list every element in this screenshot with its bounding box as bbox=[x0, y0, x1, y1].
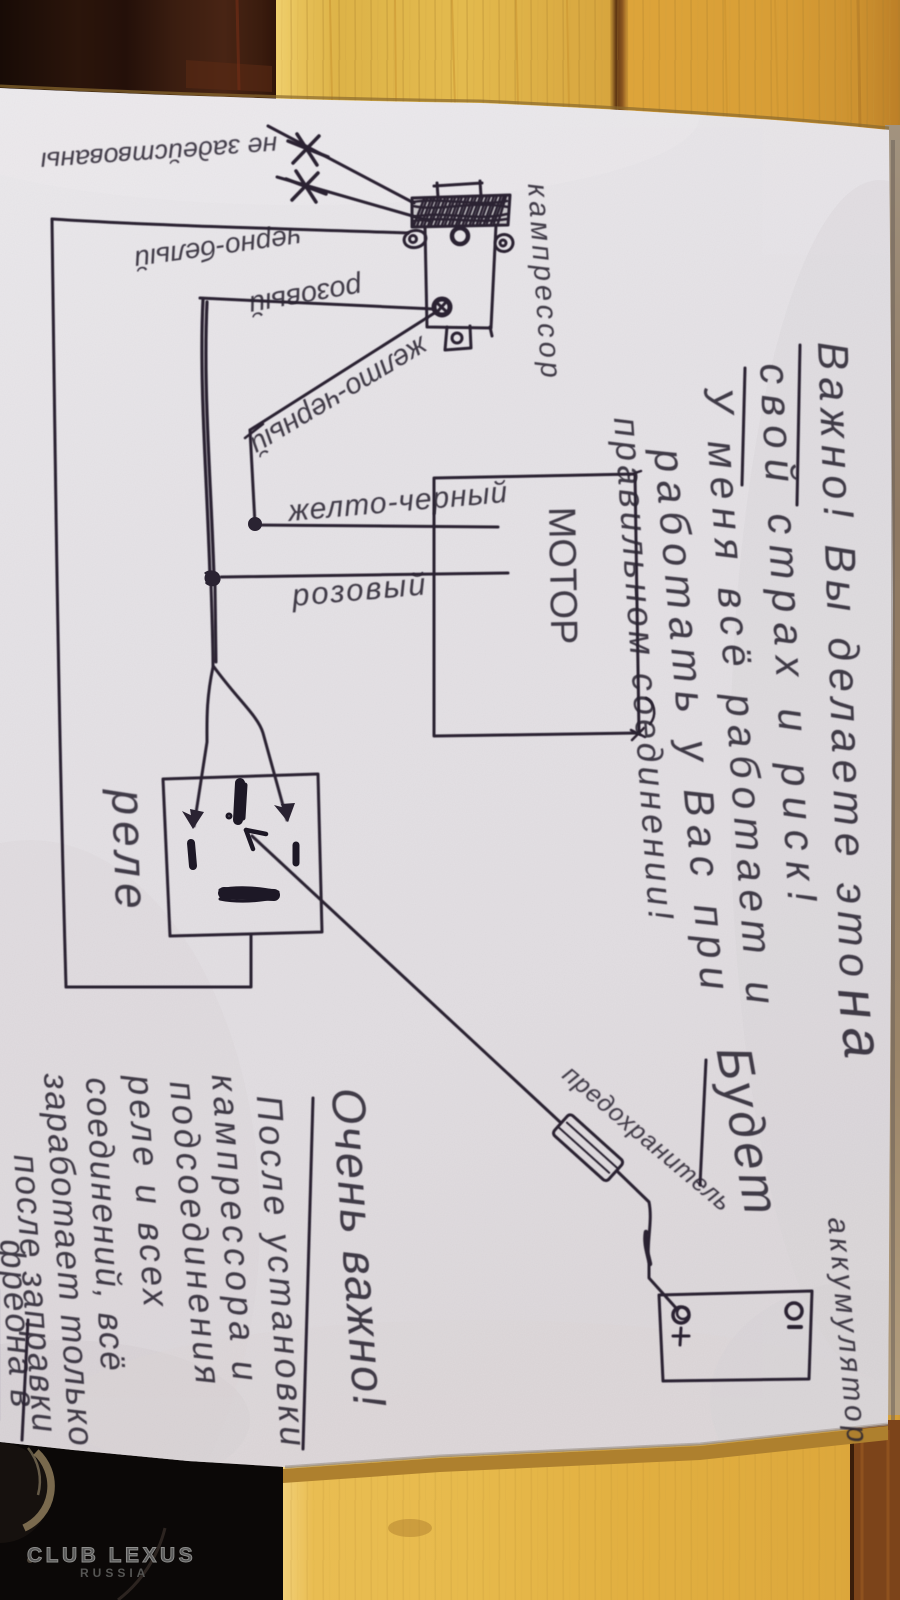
svg-text:МОТОР: МОТОР bbox=[540, 506, 584, 644]
svg-text:RUSSIA: RUSSIA bbox=[80, 1566, 149, 1580]
svg-text:на: на bbox=[826, 985, 897, 1069]
svg-text:реле: реле bbox=[102, 787, 158, 916]
svg-text:CLUB LEXUS: CLUB LEXUS bbox=[27, 1544, 196, 1567]
